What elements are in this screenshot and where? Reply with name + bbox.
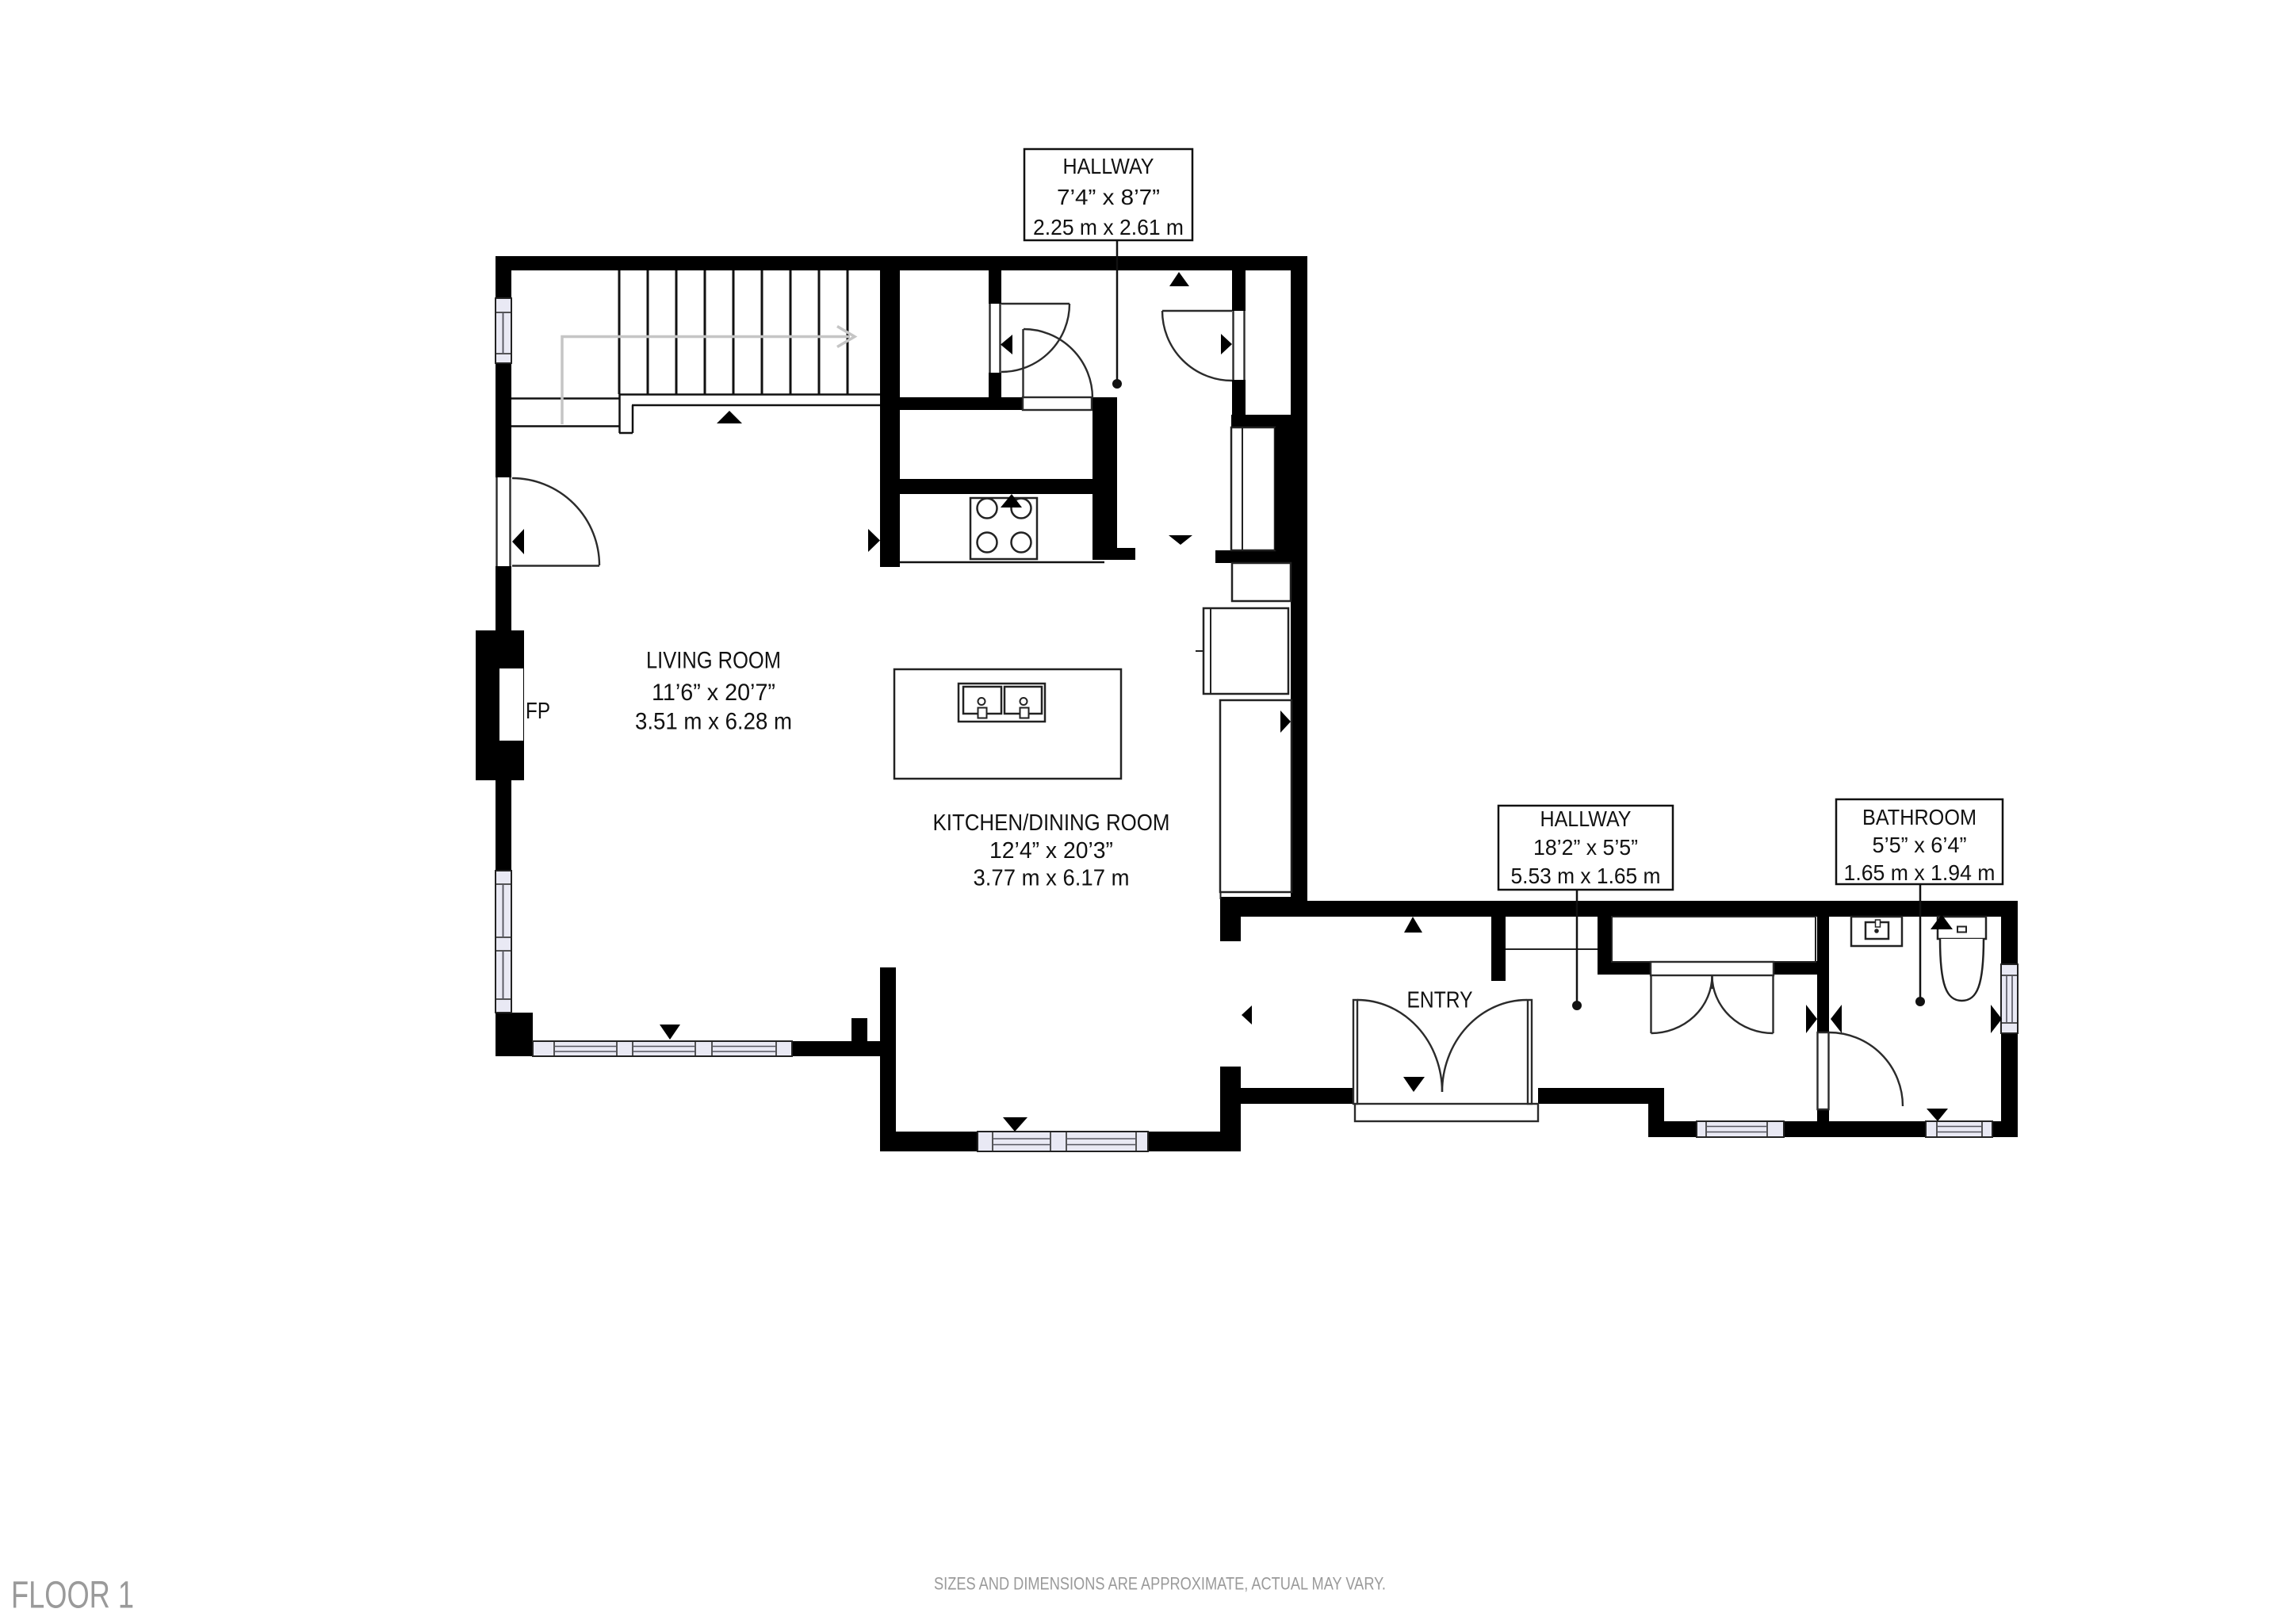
svg-text:HALLWAY: HALLWAY [1063,154,1154,178]
svg-text:12’4” x 20’3”: 12’4” x 20’3” [989,838,1113,864]
svg-text:SIZES AND DIMENSIONS ARE APPRO: SIZES AND DIMENSIONS ARE APPROXIMATE, AC… [934,1574,1386,1594]
svg-text:3.77 m x 6.17 m: 3.77 m x 6.17 m [974,866,1130,891]
svg-text:LIVING ROOM: LIVING ROOM [646,648,781,674]
svg-text:5.53 m x 1.65 m: 5.53 m x 1.65 m [1511,864,1661,888]
svg-text:18’2” x 5’5”: 18’2” x 5’5” [1533,835,1638,860]
svg-text:ENTRY: ENTRY [1407,988,1473,1013]
svg-text:2.25 m x 2.61 m: 2.25 m x 2.61 m [1033,215,1184,239]
svg-text:3.51 m x 6.28 m: 3.51 m x 6.28 m [635,709,792,735]
svg-text:1.65 m x 1.94 m: 1.65 m x 1.94 m [1844,860,1996,885]
svg-text:FLOOR 1: FLOOR 1 [11,1575,134,1617]
svg-text:5’5” x 6’4”: 5’5” x 6’4” [1873,833,1967,857]
svg-text:BATHROOM: BATHROOM [1862,805,1976,829]
svg-text:FP: FP [526,699,550,724]
svg-text:7’4” x 8’7”: 7’4” x 8’7” [1057,185,1160,209]
svg-text:HALLWAY: HALLWAY [1540,806,1632,831]
svg-text:KITCHEN/DINING ROOM: KITCHEN/DINING ROOM [933,810,1170,836]
svg-text:11’6” x 20’7”: 11’6” x 20’7” [652,680,775,706]
